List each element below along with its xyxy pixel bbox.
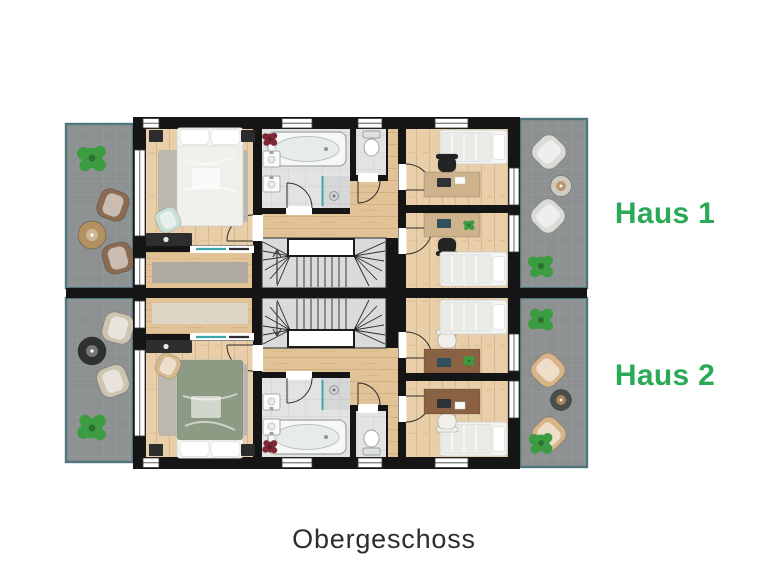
plant-icon — [529, 433, 553, 454]
haus2-unit — [66, 296, 587, 469]
floor-label: Obergeschoss — [0, 524, 768, 555]
haus1-unit — [66, 117, 587, 290]
floorplan-svg — [0, 0, 768, 576]
party-wall — [66, 288, 587, 298]
haus2-label: Haus 2 — [606, 359, 724, 393]
floorplan-page: Haus 1 Haus 2 Obergeschoss — [0, 0, 768, 576]
haus1-label: Haus 1 — [606, 197, 724, 231]
